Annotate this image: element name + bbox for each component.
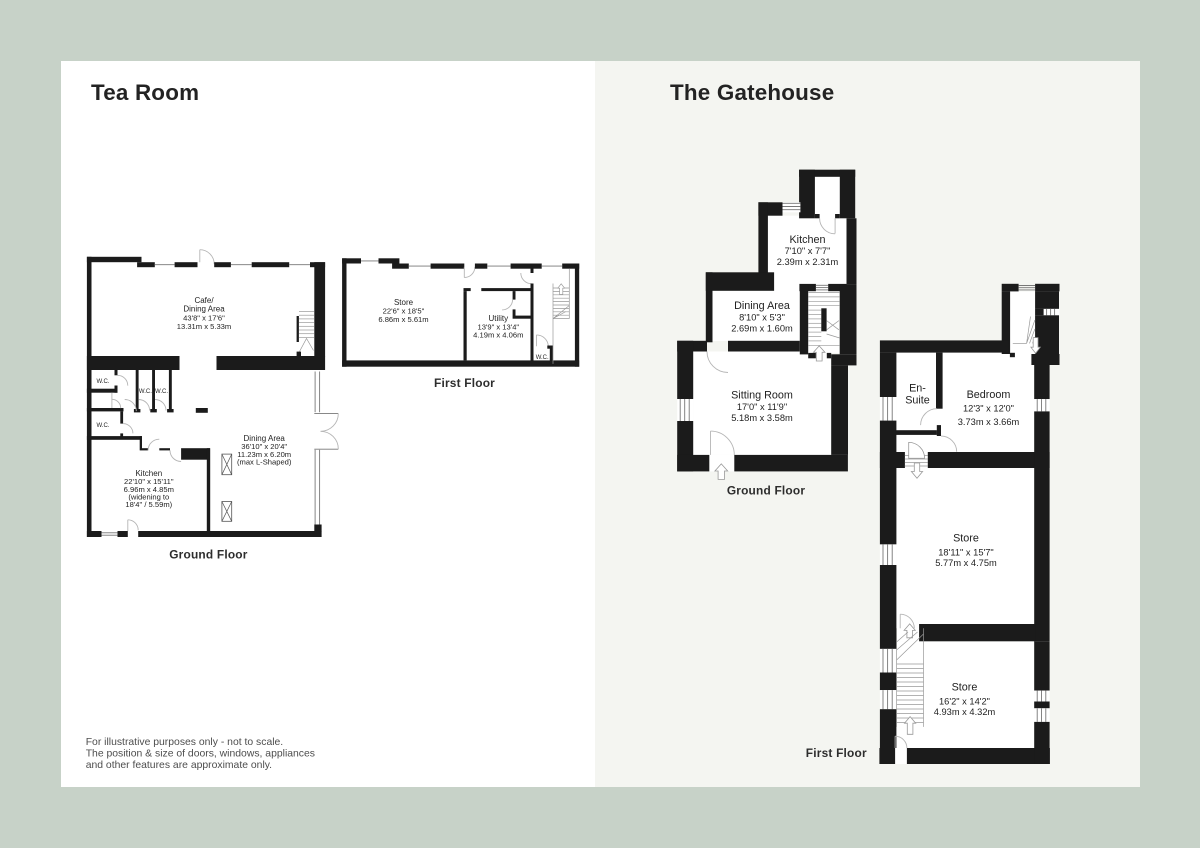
svg-text:W.C.: W.C. [155,389,168,395]
svg-text:5.77m x 4.75m: 5.77m x 4.75m [935,558,997,568]
svg-text:En-: En- [909,383,926,395]
svg-text:17'0" x 11'9": 17'0" x 11'9" [737,402,787,412]
svg-text:(max L-Shaped): (max L-Shaped) [237,457,292,466]
svg-text:Ground Floor: Ground Floor [727,484,806,498]
svg-text:6.86m x 5.61m: 6.86m x 5.61m [378,315,428,324]
svg-text:W.C.: W.C. [97,379,110,385]
svg-text:4.19m x 4.06m: 4.19m x 4.06m [473,331,523,340]
svg-text:12'3" x 12'0": 12'3" x 12'0" [963,404,1014,414]
svg-text:7'10" x 7'7": 7'10" x 7'7" [785,246,831,256]
svg-text:Bedroom: Bedroom [967,389,1011,401]
svg-text:For illustrative purposes only: For illustrative purposes only - not to … [86,737,284,748]
svg-text:Ground Floor: Ground Floor [169,547,248,561]
svg-text:4.93m x 4.32m: 4.93m x 4.32m [934,707,996,717]
svg-text:Store: Store [953,533,979,545]
svg-text:13.31m x 5.33m: 13.31m x 5.33m [177,322,231,331]
svg-text:Dining Area: Dining Area [734,300,790,312]
svg-text:First Floor: First Floor [806,746,867,760]
svg-text:43'8" x 17'6": 43'8" x 17'6" [183,313,225,322]
svg-text:18'11" x 15'7": 18'11" x 15'7" [938,548,993,558]
svg-text:The position & size of doors,: The position & size of doors, windows, a… [86,748,315,759]
svg-text:2.39m x 2.31m: 2.39m x 2.31m [777,257,839,267]
svg-text:8'10" x 5'3": 8'10" x 5'3" [739,313,785,323]
svg-text:W.C.: W.C. [536,355,549,361]
svg-text:Suite: Suite [905,394,930,406]
svg-text:Tea Room: Tea Room [91,80,199,105]
svg-text:W.C.: W.C. [97,423,110,429]
svg-text:5.18m x 3.58m: 5.18m x 3.58m [731,413,793,423]
svg-text:3.73m x 3.66m: 3.73m x 3.66m [958,417,1020,427]
svg-text:The Gatehouse: The Gatehouse [670,80,834,105]
svg-text:16'2" x 14'2": 16'2" x 14'2" [939,696,990,706]
svg-text:Store: Store [952,682,978,694]
svg-text:18'4" / 5.59m): 18'4" / 5.59m) [125,500,172,509]
svg-text:Dining Area: Dining Area [183,304,225,313]
svg-text:Kitchen: Kitchen [789,234,825,246]
svg-text:Sitting Room: Sitting Room [731,390,793,402]
svg-text:2.69m x 1.60m: 2.69m x 1.60m [731,324,793,334]
svg-text:First Floor: First Floor [434,376,495,390]
svg-text:and other features are approxi: and other features are approximate only. [86,760,272,771]
svg-text:W.C.: W.C. [139,389,152,395]
